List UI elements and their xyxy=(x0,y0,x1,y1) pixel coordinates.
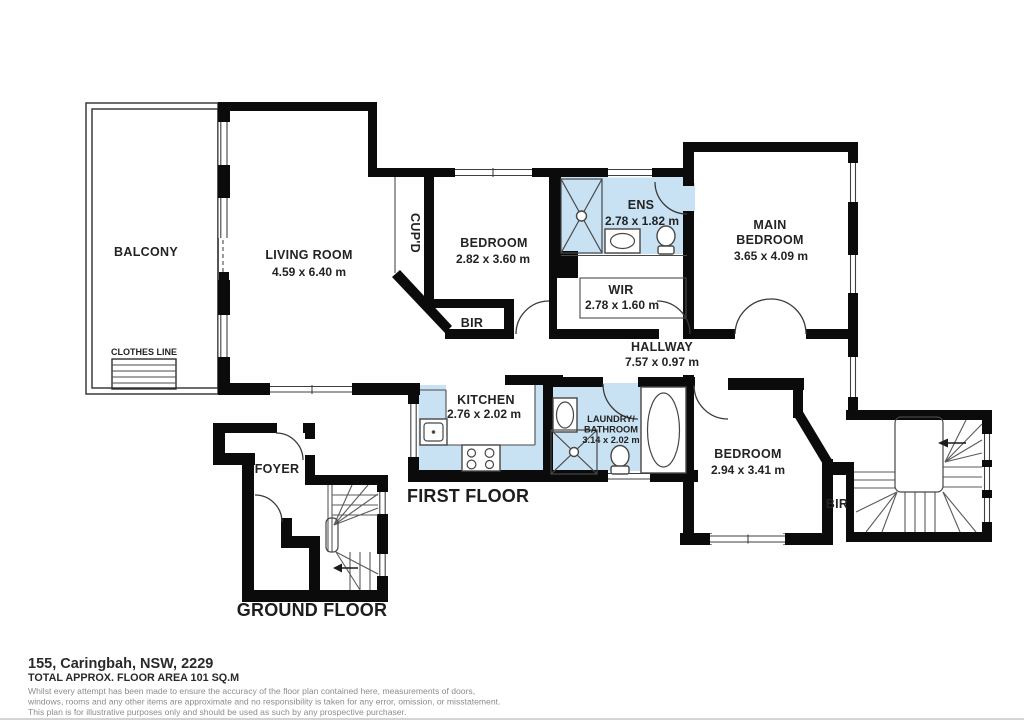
stairs-direction-arrow-icon xyxy=(333,564,358,573)
kitchen-sink xyxy=(420,419,447,445)
plan-footer: 155, Caringbah, NSW, 2229 TOTAL APPROX. … xyxy=(0,656,1024,719)
stairs-ground-floor xyxy=(326,485,378,590)
hallway-label: HALLWAY xyxy=(631,340,693,354)
hallway-dims: 7.57 x 0.97 m xyxy=(625,355,699,369)
stairs-first-floor xyxy=(854,417,982,532)
laundry-sink xyxy=(553,398,577,432)
stairwell-void xyxy=(895,417,943,492)
ensuite-label: ENS xyxy=(628,198,655,212)
window xyxy=(849,163,858,202)
ensuite-door-gap xyxy=(683,183,695,212)
clothes-line-label: CLOTHES LINE xyxy=(111,347,177,357)
floor-plan-drawing: BALCONY CLOTHES LINE LIVING ROOM 4.59 x … xyxy=(0,0,1024,724)
ground-floor-title: GROUND FLOOR xyxy=(237,600,387,620)
window xyxy=(455,168,532,178)
bathtub xyxy=(641,387,686,473)
window xyxy=(983,498,992,522)
bedroom2-bir-label: BIR xyxy=(826,497,848,511)
first-floor-plan: BALCONY CLOTHES LINE LIVING ROOM 4.59 x … xyxy=(86,102,992,545)
window xyxy=(219,315,230,357)
disclaimer-line-3: This plan is for illustrative purposes o… xyxy=(28,707,406,717)
main-bedroom-label-2: BEDROOM xyxy=(736,233,803,247)
total-floor-area: TOTAL APPROX. FLOOR AREA 101 SQ.M xyxy=(28,672,239,684)
property-address: 155, Caringbah, NSW, 2229 xyxy=(28,656,213,672)
kitchen-dims: 2.76 x 2.02 m xyxy=(447,407,521,421)
window xyxy=(983,467,992,490)
disclaimer-line-1: Whilst every attempt has been made to en… xyxy=(28,686,475,696)
foyer-door-swing xyxy=(255,495,282,522)
main-bedroom-right-door-swing xyxy=(771,299,806,334)
window xyxy=(608,168,652,178)
window xyxy=(409,404,419,457)
ensuite-vanity-sink xyxy=(605,229,640,253)
balcony-label: BALCONY xyxy=(114,245,178,259)
window xyxy=(270,384,352,395)
window xyxy=(219,198,230,238)
stairs-direction-arrow-icon xyxy=(938,439,966,448)
main-bedroom-label-1: MAIN xyxy=(753,218,786,232)
bedroom2-label: BEDROOM xyxy=(714,447,781,461)
laundry-label-1: LAUNDRY/ xyxy=(587,414,635,424)
wir-dims: 2.78 x 1.60 m xyxy=(585,298,659,312)
wir-label: WIR xyxy=(608,283,633,297)
window xyxy=(378,492,388,514)
foyer-label: FOYER xyxy=(255,462,300,476)
laundry-label-2: BATHROOM xyxy=(584,425,638,435)
window xyxy=(710,534,785,545)
bedroom2-door-swing xyxy=(694,385,728,419)
living-room-dims: 4.59 x 6.40 m xyxy=(272,265,346,279)
bedroom1-dims: 2.82 x 3.60 m xyxy=(456,252,530,266)
ensuite-toilet xyxy=(657,226,675,254)
ensuite-dims: 2.78 x 1.82 m xyxy=(605,214,679,228)
cupboard-label: CUP'D xyxy=(408,213,422,253)
living-room-label: LIVING ROOM xyxy=(265,248,352,262)
laundry-toilet xyxy=(611,446,629,475)
disclaimer-line-2: windows, rooms and any other items are a… xyxy=(27,697,500,707)
clothes-line xyxy=(112,359,176,389)
bedroom1-door-swing xyxy=(516,301,549,334)
bedroom1-bir-label: BIR xyxy=(461,316,483,330)
kitchen-cooktop xyxy=(462,445,500,471)
main-bedroom-left-door-swing xyxy=(735,299,771,334)
window xyxy=(378,554,388,576)
window xyxy=(219,122,230,165)
window xyxy=(983,434,992,460)
laundry-dims: 3.14 x 2.02 m xyxy=(582,435,639,445)
door-swings-ground-floor xyxy=(255,433,303,522)
bedroom1-label: BEDROOM xyxy=(460,236,527,250)
floor-plan-page: BALCONY CLOTHES LINE LIVING ROOM 4.59 x … xyxy=(0,0,1024,724)
ground-floor-plan: FOYER GROUND FLOOR xyxy=(213,423,388,620)
bedroom2-dims: 2.94 x 3.41 m xyxy=(711,463,785,477)
first-floor-title: FIRST FLOOR xyxy=(407,486,529,506)
window xyxy=(849,357,858,397)
entry-door-swing xyxy=(276,433,303,460)
main-bedroom-dims: 3.65 x 4.09 m xyxy=(734,249,808,263)
window xyxy=(849,255,858,293)
kitchen-label: KITCHEN xyxy=(457,393,515,407)
